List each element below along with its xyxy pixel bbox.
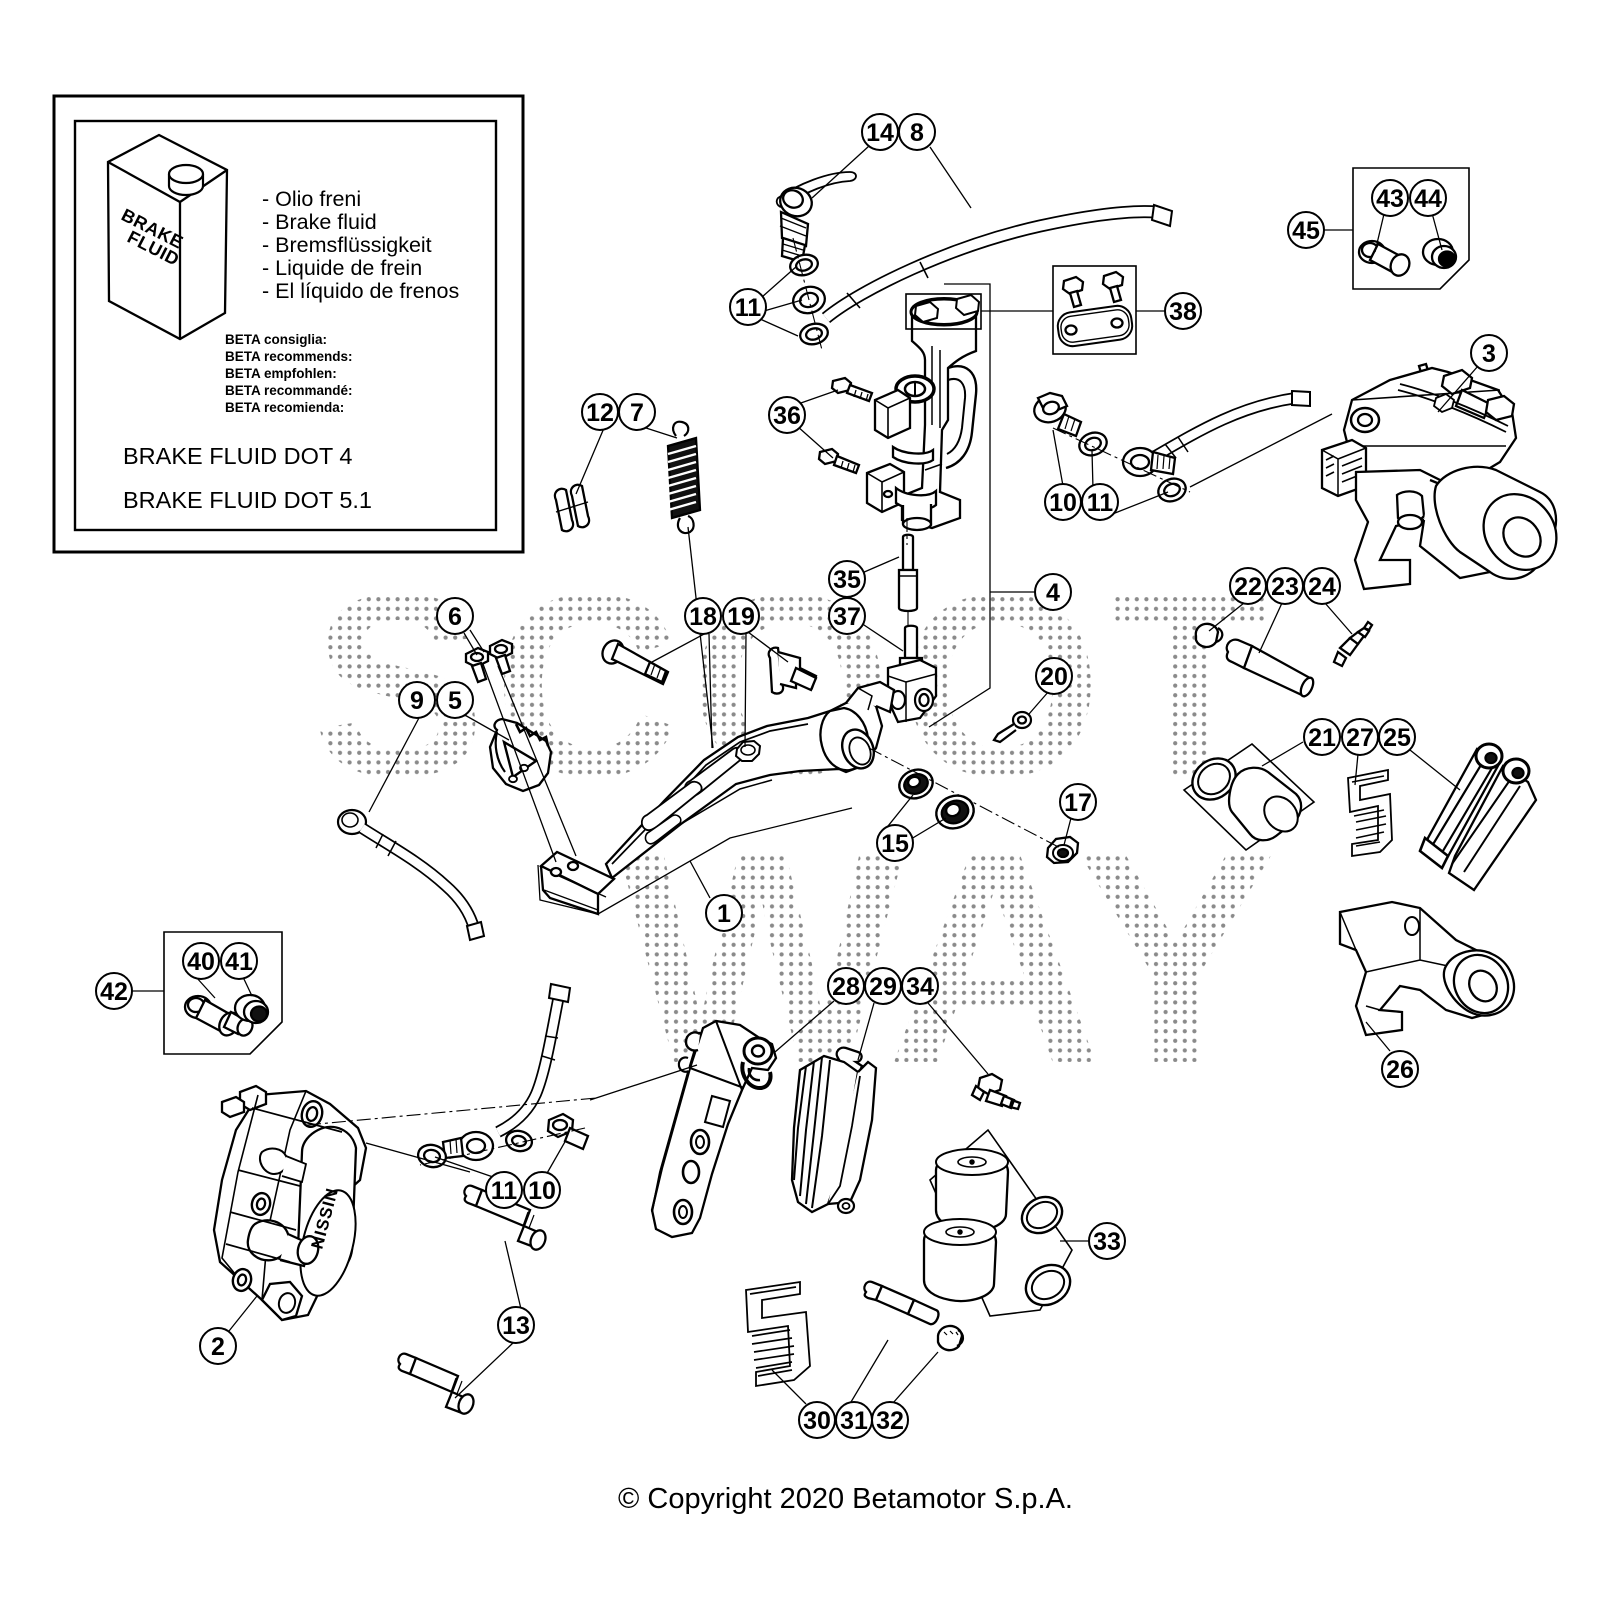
svg-text:10: 10	[528, 1177, 556, 1205]
svg-text:8: 8	[910, 119, 924, 147]
svg-text:3: 3	[1482, 340, 1496, 368]
svg-text:- Bremsflüssigkeit: - Bremsflüssigkeit	[262, 233, 432, 257]
svg-text:5: 5	[448, 687, 462, 715]
svg-text:19: 19	[727, 603, 755, 631]
svg-text:11: 11	[491, 1177, 518, 1205]
svg-text:15: 15	[881, 830, 909, 858]
svg-text:11: 11	[1087, 489, 1114, 517]
svg-text:- Brake fluid: - Brake fluid	[262, 210, 377, 234]
svg-text:- El líquido de frenos: - El líquido de frenos	[262, 279, 459, 303]
svg-text:BRAKE FLUID DOT 4: BRAKE FLUID DOT 4	[123, 443, 352, 469]
svg-text:28: 28	[832, 973, 860, 1001]
svg-text:33: 33	[1093, 1228, 1121, 1256]
svg-text:45: 45	[1292, 217, 1320, 245]
svg-text:BETA recommandé:: BETA recommandé:	[225, 383, 353, 398]
svg-text:BETA recomienda:: BETA recomienda:	[225, 400, 344, 415]
svg-text:© Copyright 2020 Betamotor S.p: © Copyright 2020 Betamotor S.p.A.	[618, 1483, 1073, 1515]
svg-text:20: 20	[1040, 663, 1068, 691]
svg-text:25: 25	[1383, 724, 1411, 752]
svg-text:1: 1	[717, 900, 731, 928]
svg-text:30: 30	[803, 1407, 831, 1435]
svg-text:4: 4	[1046, 579, 1060, 607]
svg-text:13: 13	[502, 1312, 530, 1340]
svg-text:9: 9	[410, 687, 424, 715]
svg-text:38: 38	[1169, 298, 1197, 326]
svg-text:37: 37	[833, 603, 861, 631]
svg-text:11: 11	[735, 294, 762, 322]
svg-text:34: 34	[906, 973, 934, 1001]
svg-text:BETA empfohlen:: BETA empfohlen:	[225, 366, 337, 381]
svg-text:27: 27	[1346, 724, 1374, 752]
svg-text:22: 22	[1234, 573, 1262, 601]
svg-text:BETA consiglia:: BETA consiglia:	[225, 332, 327, 347]
svg-text:- Liquide de frein: - Liquide de frein	[262, 256, 422, 280]
svg-text:24: 24	[1308, 573, 1336, 601]
svg-text:21: 21	[1308, 724, 1336, 752]
svg-text:41: 41	[225, 948, 253, 976]
svg-text:31: 31	[840, 1407, 868, 1435]
svg-text:44: 44	[1414, 185, 1442, 213]
svg-text:23: 23	[1271, 573, 1299, 601]
svg-text:7: 7	[630, 399, 644, 427]
svg-text:BRAKE FLUID DOT 5.1: BRAKE FLUID DOT 5.1	[123, 487, 372, 513]
svg-text:32: 32	[876, 1407, 904, 1435]
svg-text:43: 43	[1376, 185, 1404, 213]
svg-text:42: 42	[100, 978, 128, 1006]
svg-text:18: 18	[689, 603, 717, 631]
svg-text:6: 6	[448, 603, 462, 631]
svg-text:14: 14	[866, 119, 894, 147]
svg-text:- Olio freni: - Olio freni	[262, 187, 361, 211]
svg-text:BETA recommends:: BETA recommends:	[225, 349, 353, 364]
svg-text:2: 2	[211, 1333, 225, 1361]
svg-text:12: 12	[586, 399, 614, 427]
svg-text:10: 10	[1049, 489, 1077, 517]
svg-text:40: 40	[187, 948, 215, 976]
svg-text:26: 26	[1386, 1056, 1414, 1084]
svg-text:35: 35	[833, 566, 861, 594]
svg-text:29: 29	[869, 973, 897, 1001]
svg-text:17: 17	[1064, 789, 1092, 817]
svg-text:36: 36	[773, 402, 801, 430]
